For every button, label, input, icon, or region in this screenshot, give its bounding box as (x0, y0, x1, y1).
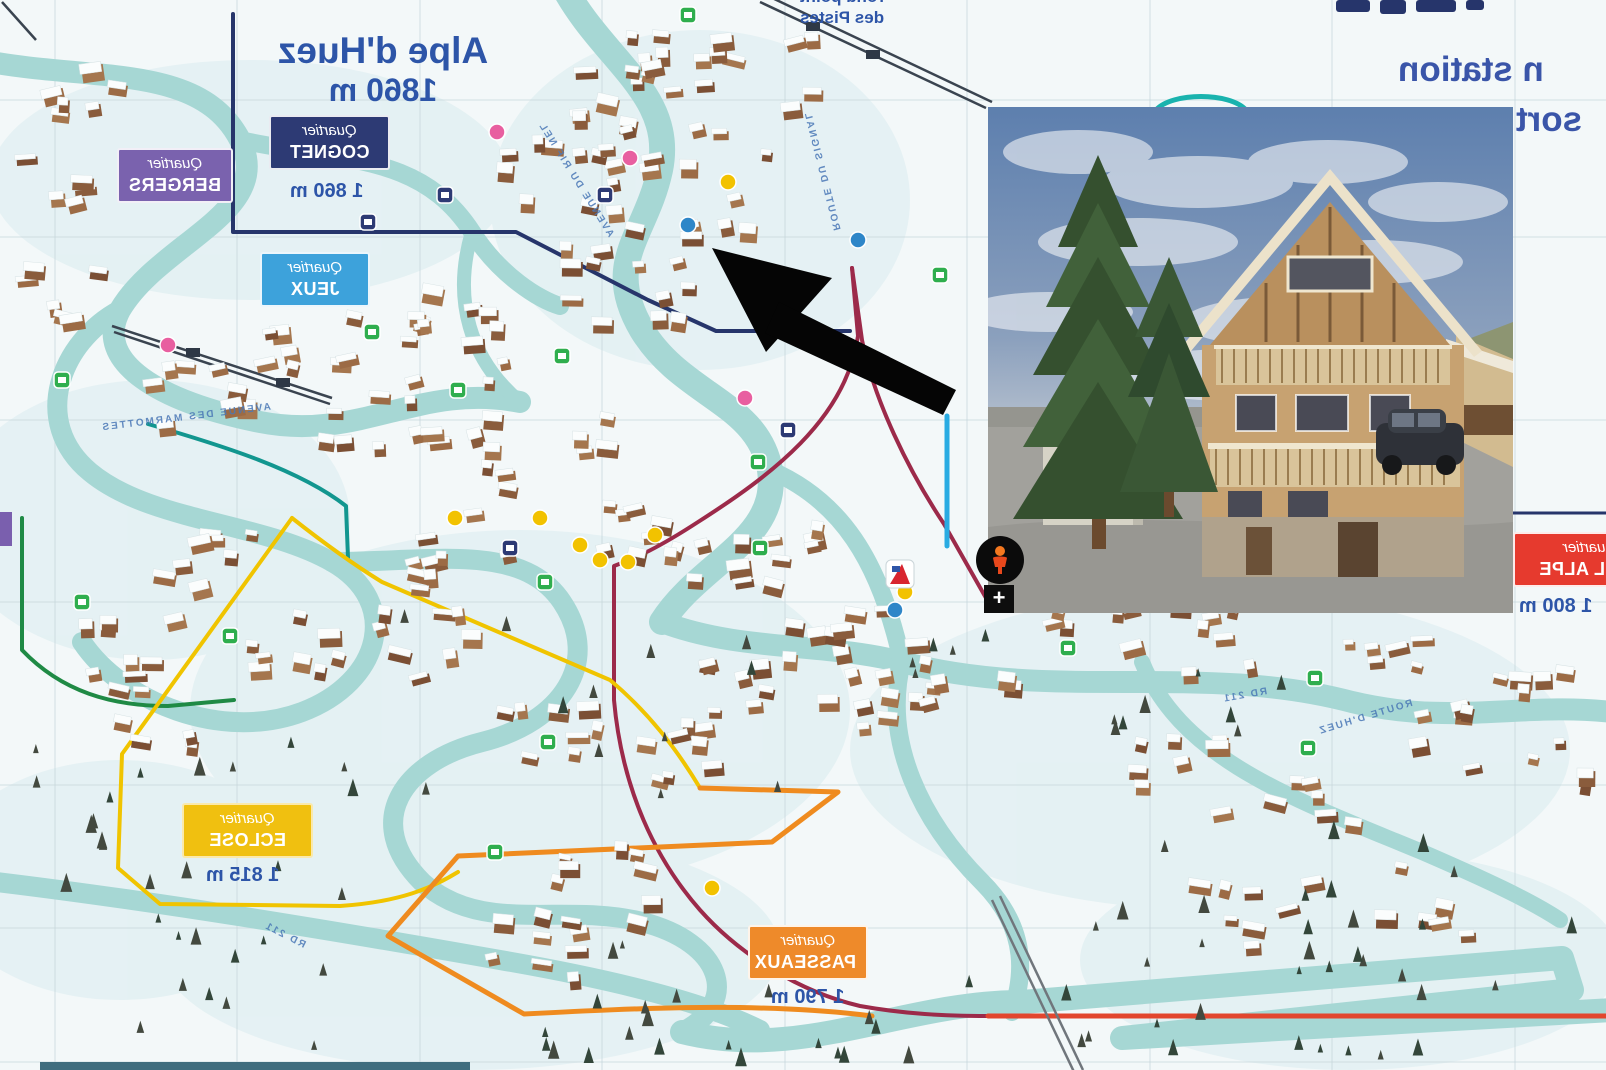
building (650, 310, 668, 329)
poi-icon (489, 124, 505, 140)
building (461, 629, 483, 649)
building (123, 671, 148, 683)
building (680, 282, 697, 296)
poi-icon (160, 337, 176, 353)
building (1223, 915, 1239, 927)
poi-icon (782, 292, 798, 308)
building (88, 265, 110, 281)
building (496, 162, 516, 183)
building (175, 360, 197, 374)
building (591, 317, 614, 334)
building (733, 534, 751, 554)
rond-point-line2: des Pistes (800, 7, 884, 28)
zoom-in-button[interactable]: + (984, 585, 1014, 613)
building (317, 628, 342, 648)
building (400, 336, 419, 348)
district-label-cognet: QuartierCOGNET (269, 115, 390, 170)
header-resort-text: sort (1516, 100, 1582, 140)
building (483, 442, 502, 461)
building (594, 439, 619, 458)
building (1242, 887, 1263, 901)
building (686, 573, 704, 590)
building (783, 618, 806, 638)
building (680, 232, 704, 247)
building (876, 711, 899, 727)
altitude-cognet: 1 860 m (277, 180, 377, 203)
building (598, 143, 616, 157)
inset-photo (988, 107, 1513, 613)
building (566, 732, 591, 744)
building (817, 694, 840, 712)
building (905, 637, 931, 654)
poi-icon (680, 217, 696, 233)
building (1459, 930, 1477, 944)
building (70, 175, 94, 191)
district-label-passeaux: QuartierPASSEAUX (748, 925, 868, 980)
pegman-icon (989, 545, 1011, 575)
building (1205, 740, 1230, 757)
building (559, 241, 574, 259)
building (560, 295, 583, 307)
bottom-map-edge-bar (40, 1062, 470, 1070)
map-title: Alpe d'Huez 1860 m (258, 30, 508, 109)
building (694, 53, 712, 69)
building (1311, 791, 1325, 806)
building (519, 194, 536, 214)
building (420, 283, 446, 307)
building (1127, 764, 1149, 781)
poi-icon (620, 554, 636, 570)
building (1213, 632, 1236, 647)
building (421, 427, 445, 443)
building (326, 408, 343, 420)
building (409, 584, 431, 598)
building (1554, 664, 1576, 682)
building (576, 701, 601, 720)
streetview-pegman-button[interactable] (976, 536, 1024, 584)
building (368, 390, 391, 405)
poi-icon (572, 537, 588, 553)
building (140, 657, 164, 671)
building (694, 79, 715, 93)
poi-icon (850, 232, 866, 248)
building (651, 30, 671, 45)
edge-purple-icon (0, 512, 12, 546)
resort-map-screenshot: { "header": { "station_text": "n station… (0, 0, 1606, 1070)
building (614, 841, 629, 860)
rond-point-label: rond point des Pistes (742, 0, 942, 29)
building (1134, 780, 1151, 796)
esf-logo-badge (886, 560, 914, 588)
building (1517, 683, 1532, 702)
header-station-text: n station (1398, 50, 1544, 90)
poi-icon (720, 174, 736, 190)
building (1166, 734, 1182, 750)
building (701, 760, 724, 778)
building (500, 148, 519, 162)
poi-icon (887, 602, 903, 618)
district-label-vieil-alpe: QuartierVIEIL ALPE (1513, 532, 1606, 587)
building (481, 410, 504, 431)
chalet-photo-illustration (988, 107, 1513, 613)
poi-icon (704, 880, 720, 896)
building (1343, 816, 1364, 835)
map-title-line2: 1860 m (258, 72, 508, 109)
building (573, 66, 598, 80)
district-label-jeux: QuartierJEUX (260, 252, 370, 307)
building (996, 671, 1017, 693)
altitude-passeaux: 1 790 m (758, 986, 858, 1009)
district-label-bergers: QuartierBERGERS (117, 148, 233, 203)
building (770, 554, 792, 568)
building (1315, 809, 1339, 824)
poi-icon (737, 390, 753, 406)
poi-icon (622, 150, 638, 166)
building (100, 615, 118, 632)
building (663, 86, 683, 99)
building (635, 736, 658, 755)
building (830, 622, 855, 641)
building (492, 913, 516, 934)
poi-icon (592, 552, 608, 568)
building (1533, 671, 1553, 690)
building (690, 736, 709, 756)
building (879, 687, 901, 708)
building (532, 931, 553, 946)
building (560, 259, 583, 277)
photo-gable-window (1288, 257, 1372, 291)
building (572, 111, 587, 130)
poi-icon (447, 510, 463, 526)
building (1410, 635, 1435, 647)
poi-icon (532, 510, 548, 526)
building (461, 336, 486, 355)
building (707, 707, 722, 719)
building (710, 32, 735, 53)
rond-point-line1: rond point (800, 0, 884, 7)
building (565, 945, 589, 959)
building (558, 861, 580, 878)
building (572, 431, 589, 449)
building (489, 321, 506, 341)
altitude-vieil-alpe: 1 800 m (1508, 595, 1604, 618)
building (133, 686, 151, 698)
altitude-eclose: 1 815 m (193, 864, 293, 887)
building (1374, 910, 1398, 929)
building (802, 87, 823, 102)
building (781, 651, 798, 671)
poi-icon (647, 527, 663, 543)
building (711, 128, 728, 140)
building (738, 222, 758, 243)
building (1577, 768, 1596, 787)
map-title-line1: Alpe d'Huez (258, 30, 508, 72)
building (106, 80, 128, 97)
building (14, 153, 38, 166)
building (641, 895, 662, 913)
district-label-eclose: QuartierECLOSE (182, 803, 313, 858)
building (22, 261, 46, 280)
building (679, 159, 698, 178)
